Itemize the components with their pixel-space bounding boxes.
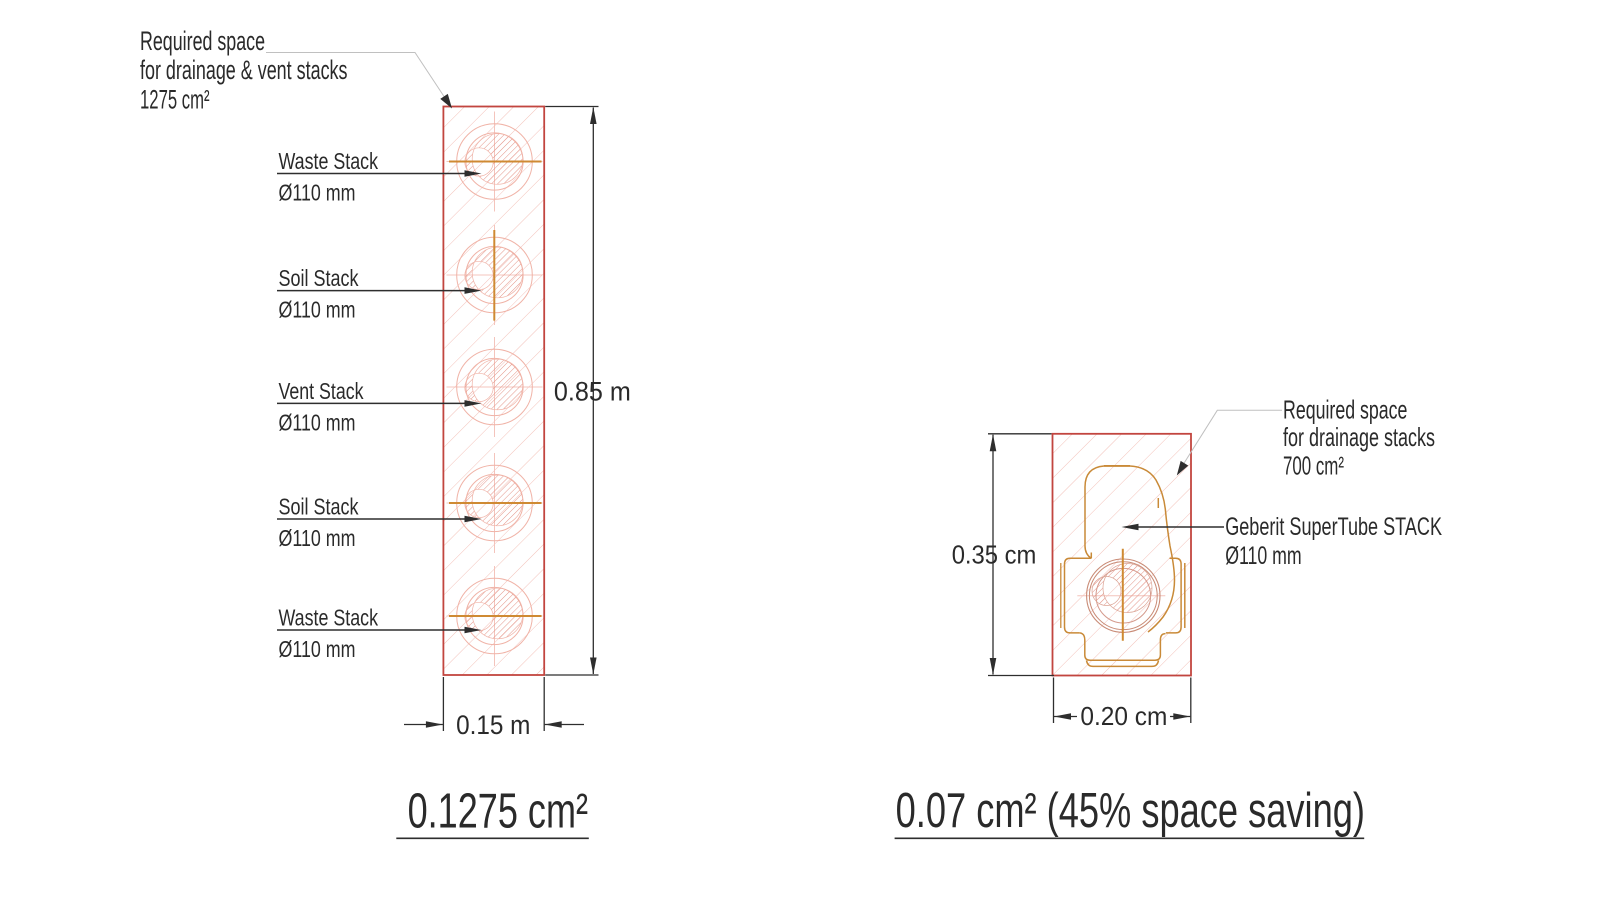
svg-text:0.35 cm: 0.35 cm <box>952 540 1037 570</box>
svg-text:for drainage & vent stacks: for drainage & vent stacks <box>140 55 348 85</box>
svg-text:Required space: Required space <box>1283 394 1407 424</box>
svg-text:0.85 m: 0.85 m <box>554 377 631 407</box>
svg-text:Ø110 mm: Ø110 mm <box>279 409 356 435</box>
svg-text:Ø110 mm: Ø110 mm <box>279 179 356 205</box>
svg-text:1275 cm²: 1275 cm² <box>140 85 210 115</box>
svg-text:0.15 m: 0.15 m <box>456 710 530 740</box>
svg-text:Soil Stack: Soil Stack <box>279 493 359 519</box>
svg-text:Ø110 mm: Ø110 mm <box>279 297 356 323</box>
svg-text:700 cm²: 700 cm² <box>1283 451 1344 481</box>
svg-text:Soil Stack: Soil Stack <box>279 265 359 291</box>
svg-text:0.1275 cm²: 0.1275 cm² <box>408 785 588 839</box>
svg-text:Geberit SuperTube STACK: Geberit SuperTube STACK <box>1225 513 1442 541</box>
svg-text:Vent Stack: Vent Stack <box>279 378 364 404</box>
svg-text:0.20 cm: 0.20 cm <box>1080 701 1167 731</box>
svg-text:Waste Stack: Waste Stack <box>279 148 379 174</box>
svg-text:for drainage stacks: for drainage stacks <box>1283 422 1435 452</box>
svg-text:Ø110 mm: Ø110 mm <box>279 636 356 662</box>
svg-text:Ø110 mm: Ø110 mm <box>1225 542 1302 570</box>
svg-text:Ø110 mm: Ø110 mm <box>279 525 356 551</box>
svg-text:Waste Stack: Waste Stack <box>279 604 379 630</box>
svg-text:Required space: Required space <box>140 26 265 56</box>
svg-text:0.07 cm² (45% space saving): 0.07 cm² (45% space saving) <box>896 784 1365 838</box>
